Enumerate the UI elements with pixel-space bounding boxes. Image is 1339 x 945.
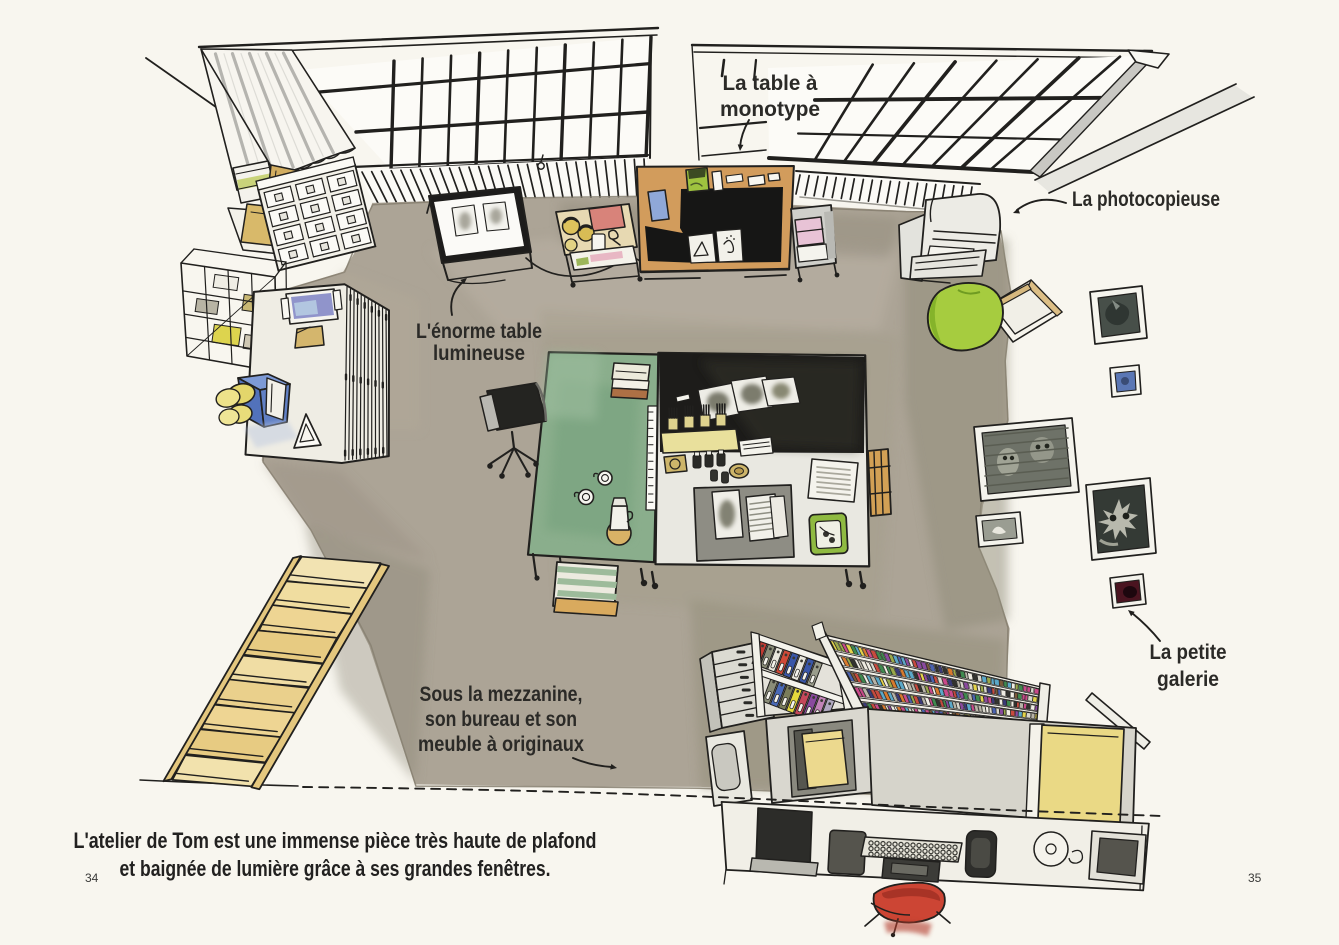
svg-text:lumineuse: lumineuse xyxy=(433,342,525,365)
svg-text:La table à: La table à xyxy=(723,72,818,95)
svg-text:meuble à originaux: meuble à originaux xyxy=(418,733,584,756)
svg-text:La petite: La petite xyxy=(1150,641,1227,664)
svg-text:35: 35 xyxy=(1248,871,1262,885)
svg-text:L'atelier de Tom est une immen: L'atelier de Tom est une immense pièce t… xyxy=(74,828,597,853)
svg-text:La photocopieuse: La photocopieuse xyxy=(1072,188,1220,211)
svg-text:son bureau et son: son bureau et son xyxy=(425,708,577,731)
svg-text:L'énorme table: L'énorme table xyxy=(416,320,542,343)
svg-text:Sous la mezzanine,: Sous la mezzanine, xyxy=(420,683,583,706)
svg-text:galerie: galerie xyxy=(1157,668,1219,691)
svg-text:34: 34 xyxy=(85,871,99,885)
svg-text:monotype: monotype xyxy=(720,98,820,121)
svg-text:et baignée de lumière grâce à: et baignée de lumière grâce à ses grande… xyxy=(120,856,551,881)
